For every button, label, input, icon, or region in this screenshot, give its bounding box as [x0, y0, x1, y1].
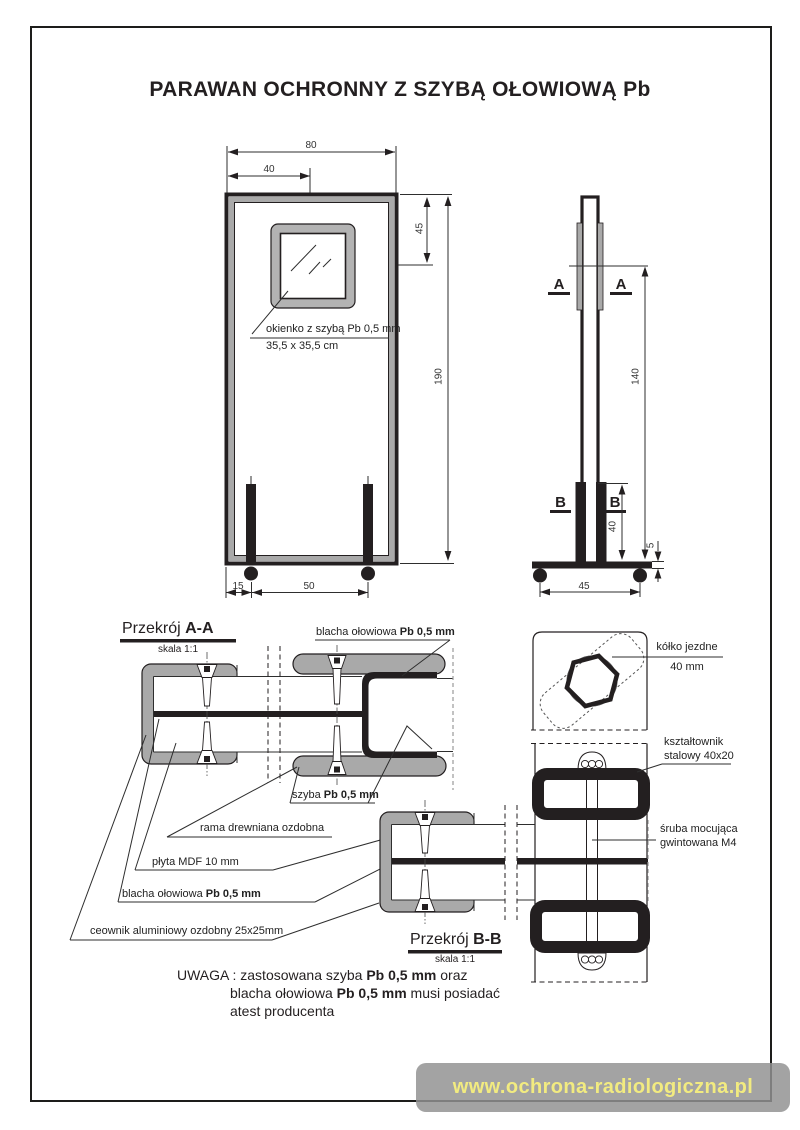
section-bb-scale: skala 1:1 — [408, 954, 502, 965]
aa-lead-sheet — [154, 711, 362, 717]
section-aa-heading-word: Przekrój — [122, 620, 185, 637]
section-aa-heading: Przekrój A-A — [122, 620, 214, 638]
side-wheel-right — [633, 569, 647, 583]
wheel-housing — [533, 632, 647, 730]
detail-column-drawing — [517, 628, 731, 982]
label-aluminium-channel: ceownik aluminiowy ozdobny 25x25mm — [90, 925, 283, 937]
label-lead-sheet-bottom: blacha ołowiowa Pb 0,5 mm — [122, 888, 261, 900]
aa-wood-frame-top — [293, 654, 445, 674]
dim-width-80: 80 — [296, 140, 326, 151]
dim-window-top-45: 45 — [415, 214, 426, 244]
label-steel-profile: kształtownik — [664, 736, 723, 748]
window-label: okienko z szybą Pb 0,5 mm — [266, 323, 401, 335]
side-leg-block-left — [576, 482, 587, 562]
footer-banner: www.ochrona-radiologiczna.pl — [416, 1063, 790, 1112]
side-view-drawing — [532, 197, 664, 597]
dim-window-offset-40: 40 — [254, 164, 284, 175]
front-wheel-right — [361, 567, 375, 581]
section-marker-b-left: B — [550, 494, 571, 511]
section-marker-b-right: B — [604, 494, 626, 511]
label-bolt-thread: gwintowana M4 — [660, 837, 736, 849]
section-bb-heading: Przekrój B-B — [410, 931, 502, 949]
dim-base-45: 45 — [570, 581, 598, 592]
dim-height-190: 190 — [434, 362, 445, 392]
bb-lead-sheet — [392, 858, 505, 865]
section-aa-code: A-A — [185, 620, 213, 637]
dim-leg-block-40: 40 — [608, 512, 619, 542]
technical-drawing-page: PARAWAN OCHRONNY Z SZYBĄ OŁOWIOWĄ Pb 80 … — [0, 0, 800, 1130]
label-lead-sheet-top: blacha ołowiowa Pb 0,5 mm — [316, 626, 455, 638]
front-leg-right — [363, 484, 373, 564]
dim-height-140: 140 — [631, 362, 642, 392]
drawing-linework — [0, 0, 800, 1130]
dim-leg-inset-15: 15 — [228, 581, 248, 592]
website-url[interactable]: www.ochrona-radiologiczna.pl — [453, 1076, 753, 1098]
label-lead-glass: szyba Pb 0,5 mm — [292, 789, 379, 801]
dim-leg-span-50: 50 — [296, 581, 322, 592]
dim-base-thickness-5: 5 — [646, 538, 657, 554]
note-line-2: blacha ołowiowa Pb 0,5 mm musi posiadać — [230, 985, 500, 1001]
side-wheel-left — [533, 569, 547, 583]
note-line-3: atest producenta — [230, 1003, 334, 1019]
label-wheel: kółko jezdne — [640, 641, 734, 653]
side-base — [532, 562, 652, 569]
window-size-label: 35,5 x 35,5 cm — [266, 340, 338, 352]
aa-wood-frame-bottom — [293, 756, 446, 776]
front-wheel-left — [244, 567, 258, 581]
section-marker-a-right: A — [610, 276, 632, 293]
note-line-1: UWAGA : zastosowana szyba Pb 0,5 mm oraz — [177, 967, 468, 983]
label-bolt: śruba mocująca — [660, 823, 738, 835]
section-bb-heading-word: Przekrój — [410, 931, 473, 948]
label-wood-frame: rama drewniana ozdobna — [200, 822, 324, 834]
front-leg-left — [246, 484, 256, 564]
section-aa-scale: skala 1:1 — [120, 644, 236, 655]
page-title: PARAWAN OCHRONNY Z SZYBĄ OŁOWIOWĄ Pb — [30, 78, 770, 102]
label-mdf-board: płyta MDF 10 mm — [152, 856, 239, 868]
section-bb-code: B-B — [473, 931, 501, 948]
label-steel-profile-size: stalowy 40x20 — [664, 750, 734, 762]
aa-lead-channel — [362, 672, 437, 758]
label-wheel-size: 40 mm — [640, 661, 734, 673]
section-marker-a-left: A — [548, 276, 570, 293]
